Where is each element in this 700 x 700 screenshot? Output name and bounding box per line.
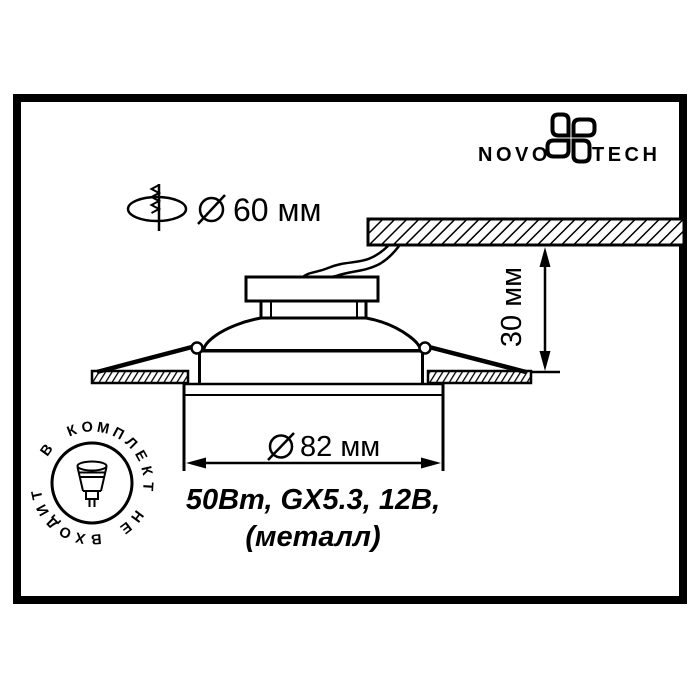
diameter-symbol-60 xyxy=(198,195,225,224)
stamp-ring-letter: Е xyxy=(117,518,135,537)
spec-line-1: 50Вт, GX5.3, 12В, xyxy=(186,484,440,516)
brand-logo: NOVO TECH xyxy=(478,115,660,167)
stamp-ring-letter: Н xyxy=(127,507,146,525)
stamp-ring-letter: Д xyxy=(43,513,62,532)
mounting-hole-screw-icon xyxy=(128,184,186,231)
stamp-ring-letter: В xyxy=(38,441,57,459)
logo-text-right: TECH xyxy=(592,144,660,166)
stamp-ring-letter: О xyxy=(81,419,94,436)
cutout-dimension: 60 мм xyxy=(128,184,321,231)
not-included-stamp: ВКОМПЛЕКТНЕВХОДИТ xyxy=(29,419,156,546)
stamp-ring-letter: И xyxy=(34,501,53,518)
pinwheel-flower-icon xyxy=(548,115,595,162)
connector-box xyxy=(246,277,378,301)
stamp-ring-letter: К xyxy=(65,422,79,440)
stamp-ring-letter: Е xyxy=(131,448,150,465)
recess-depth-label: 30 мм xyxy=(496,267,528,347)
housing-neck xyxy=(261,301,366,318)
spring-clip-right xyxy=(429,347,526,372)
logo-text-left: NOVO xyxy=(478,144,551,166)
ceiling-cut-left xyxy=(92,371,188,383)
pivot-left xyxy=(192,343,203,354)
mr16-lamp-icon xyxy=(78,462,107,508)
stamp-ring-letter: В xyxy=(90,530,102,547)
spec-line-2: (металл) xyxy=(245,521,380,553)
ceiling-cut-right xyxy=(428,371,531,383)
stamp-circle xyxy=(52,443,132,523)
stamp-ring-letter: Л xyxy=(122,434,140,453)
recess-depth-dimension: 30 мм xyxy=(496,247,560,372)
stamp-ring-letter: О xyxy=(57,522,75,541)
ceiling-slab xyxy=(368,219,684,245)
visible-diameter-dimension: 82 мм xyxy=(186,431,441,469)
stamp-ring-letter: П xyxy=(110,424,127,443)
diagram-canvas: NOVO TECH 60 мм xyxy=(0,0,700,700)
pivot-right xyxy=(420,343,431,354)
stamp-ring-letter: М xyxy=(96,420,111,438)
stamp-ring: ВКОМПЛЕКТНЕВХОДИТ xyxy=(29,419,156,546)
stamp-ring-letter: Т xyxy=(139,482,156,492)
housing-bell xyxy=(204,318,421,351)
spring-clip-left xyxy=(97,347,192,372)
cutout-diameter-label: 60 мм xyxy=(233,192,321,228)
product-diagram-page: NOVO TECH 60 мм xyxy=(0,0,700,700)
stamp-ring-letter: Т xyxy=(29,489,47,501)
diameter-symbol-82 xyxy=(268,433,294,460)
visible-diameter-label: 82 мм xyxy=(300,431,380,463)
stamp-ring-letter: Х xyxy=(74,528,87,546)
stamp-ring-letter: К xyxy=(137,465,155,477)
